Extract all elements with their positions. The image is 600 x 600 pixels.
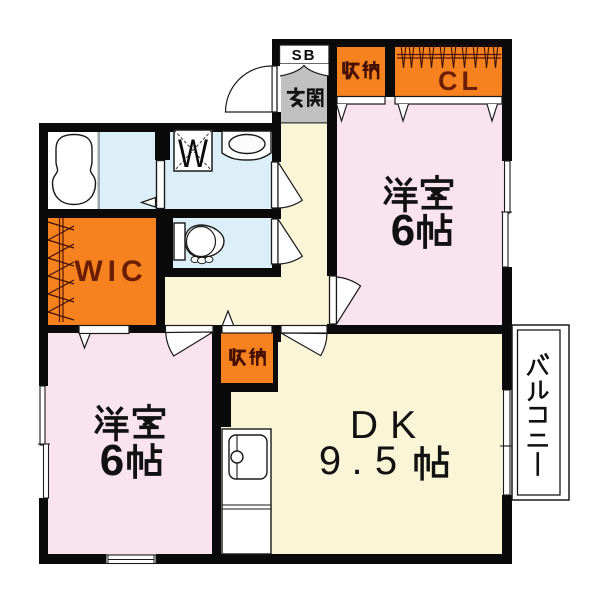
svg-text:6: 6 bbox=[391, 206, 415, 255]
svg-text:9: 9 bbox=[319, 439, 341, 483]
svg-text:5: 5 bbox=[375, 439, 397, 483]
svg-text:CL: CL bbox=[438, 66, 482, 96]
svg-text:WIC: WIC bbox=[74, 255, 147, 288]
svg-text:6: 6 bbox=[100, 436, 124, 485]
svg-text:W: W bbox=[178, 132, 208, 176]
svg-text:SB: SB bbox=[292, 47, 317, 64]
svg-text:.: . bbox=[351, 439, 362, 483]
